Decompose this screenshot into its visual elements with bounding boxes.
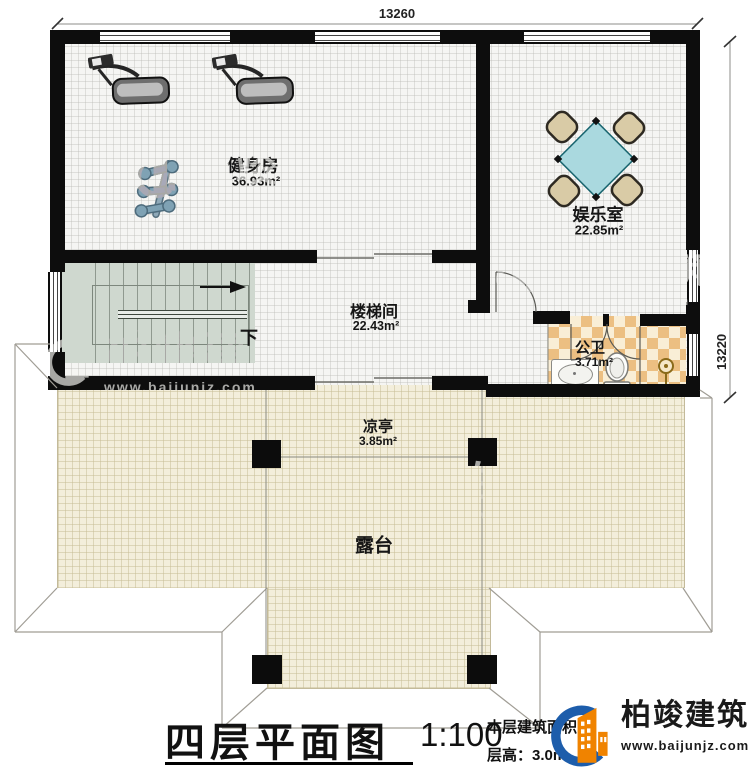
wall <box>640 314 686 326</box>
wall <box>50 250 317 263</box>
wall <box>533 311 570 324</box>
wall <box>230 30 315 44</box>
room-area-bathroom: 3.71m² <box>575 355 613 369</box>
room-label-terrace: 露台 <box>355 531 393 558</box>
stair-handrail <box>118 310 247 319</box>
wall <box>48 376 315 390</box>
window <box>48 272 62 352</box>
window <box>315 30 440 44</box>
dumbbell-rack-icon <box>132 156 192 224</box>
staircase <box>62 262 255 363</box>
pavilion-column <box>467 655 497 684</box>
pavilion-column <box>468 438 497 466</box>
room-area-stairwell: 22.43m² <box>353 319 400 333</box>
wall <box>486 384 700 397</box>
dimension-right: 13220 <box>714 334 729 370</box>
treadmill-icon <box>212 48 296 126</box>
room-area-entertainment: 22.85m² <box>575 223 623 238</box>
dimension-top: 13260 <box>352 6 442 21</box>
stairs-direction-label: 下 <box>240 324 258 350</box>
window <box>524 30 650 44</box>
window <box>687 334 700 376</box>
wall <box>468 300 490 313</box>
wall <box>603 314 609 326</box>
wall <box>50 30 65 272</box>
pavilion-column <box>252 440 281 468</box>
wall <box>686 302 700 334</box>
brand-website: www.baijunjz.com <box>621 738 749 753</box>
wall <box>432 376 488 390</box>
window <box>687 250 700 302</box>
wall <box>686 30 700 250</box>
wall <box>476 30 490 312</box>
title-underline <box>165 762 413 765</box>
brand-logo-icon <box>545 698 617 776</box>
terrace-floor-extension <box>267 588 491 689</box>
brand-logo: 柏竣建筑 www.baijunjz.com <box>545 698 749 776</box>
wall <box>432 250 478 263</box>
room-area-pavilion: 3.85m² <box>359 434 397 448</box>
plan-title: 四层平面图 <box>165 710 390 768</box>
pavilion-column <box>252 655 282 684</box>
room-area-gym: 36.93m² <box>232 174 280 189</box>
floor-plan-canvas: 13260 13220 健身房 36.93m² 娱乐室 22.85m² 楼梯间 … <box>0 0 750 784</box>
treadmill-icon <box>88 48 172 126</box>
brand-name: 柏竣建筑 <box>621 698 749 734</box>
window <box>100 30 230 44</box>
